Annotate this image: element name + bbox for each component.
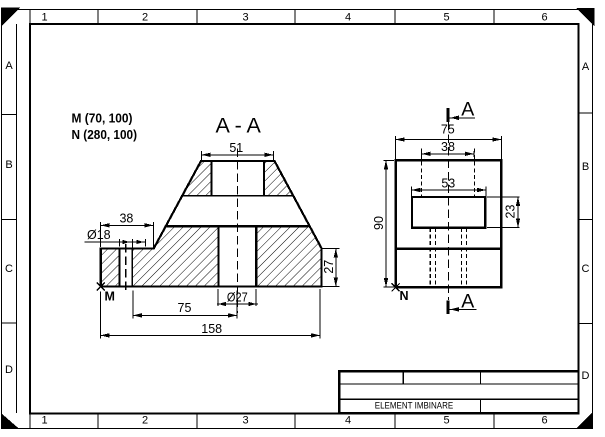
svg-text:38: 38: [119, 211, 133, 225]
svg-text:D: D: [5, 364, 13, 376]
svg-text:M: M: [105, 290, 115, 304]
svg-text:ELEMENT IMBINARE: ELEMENT IMBINARE: [375, 401, 454, 411]
svg-text:27: 27: [322, 260, 336, 274]
svg-text:5: 5: [443, 415, 449, 427]
svg-text:N: N: [400, 289, 409, 303]
svg-text:C: C: [582, 263, 590, 275]
svg-text:6: 6: [541, 415, 547, 427]
svg-text:38: 38: [441, 140, 455, 154]
svg-text:4: 4: [345, 12, 351, 24]
svg-text:4: 4: [345, 415, 351, 427]
svg-text:Ø18: Ø18: [87, 228, 111, 242]
svg-text:75: 75: [441, 123, 455, 137]
svg-text:A: A: [461, 99, 474, 121]
svg-text:2: 2: [142, 12, 148, 24]
svg-text:A: A: [582, 61, 590, 73]
svg-text:N (280, 100): N (280, 100): [72, 127, 138, 142]
svg-text:D: D: [582, 370, 590, 382]
svg-text:51: 51: [229, 141, 243, 155]
svg-text:3: 3: [242, 415, 248, 427]
svg-text:A - A: A - A: [215, 113, 261, 137]
svg-text:2: 2: [142, 415, 148, 427]
svg-text:75: 75: [178, 301, 192, 315]
svg-text:A: A: [5, 60, 13, 72]
svg-text:3: 3: [242, 12, 248, 24]
svg-text:6: 6: [541, 12, 547, 24]
svg-text:158: 158: [201, 322, 222, 336]
svg-text:C: C: [5, 263, 13, 275]
svg-text:5: 5: [443, 12, 449, 24]
svg-text:53: 53: [441, 177, 455, 191]
svg-text:A: A: [461, 291, 474, 313]
svg-text:1: 1: [41, 415, 47, 427]
svg-text:23: 23: [504, 205, 518, 219]
svg-text:90: 90: [372, 216, 386, 230]
svg-text:B: B: [5, 159, 12, 171]
svg-text:1: 1: [41, 12, 47, 24]
svg-text:M (70, 100): M (70, 100): [72, 111, 133, 126]
svg-text:B: B: [582, 161, 589, 173]
